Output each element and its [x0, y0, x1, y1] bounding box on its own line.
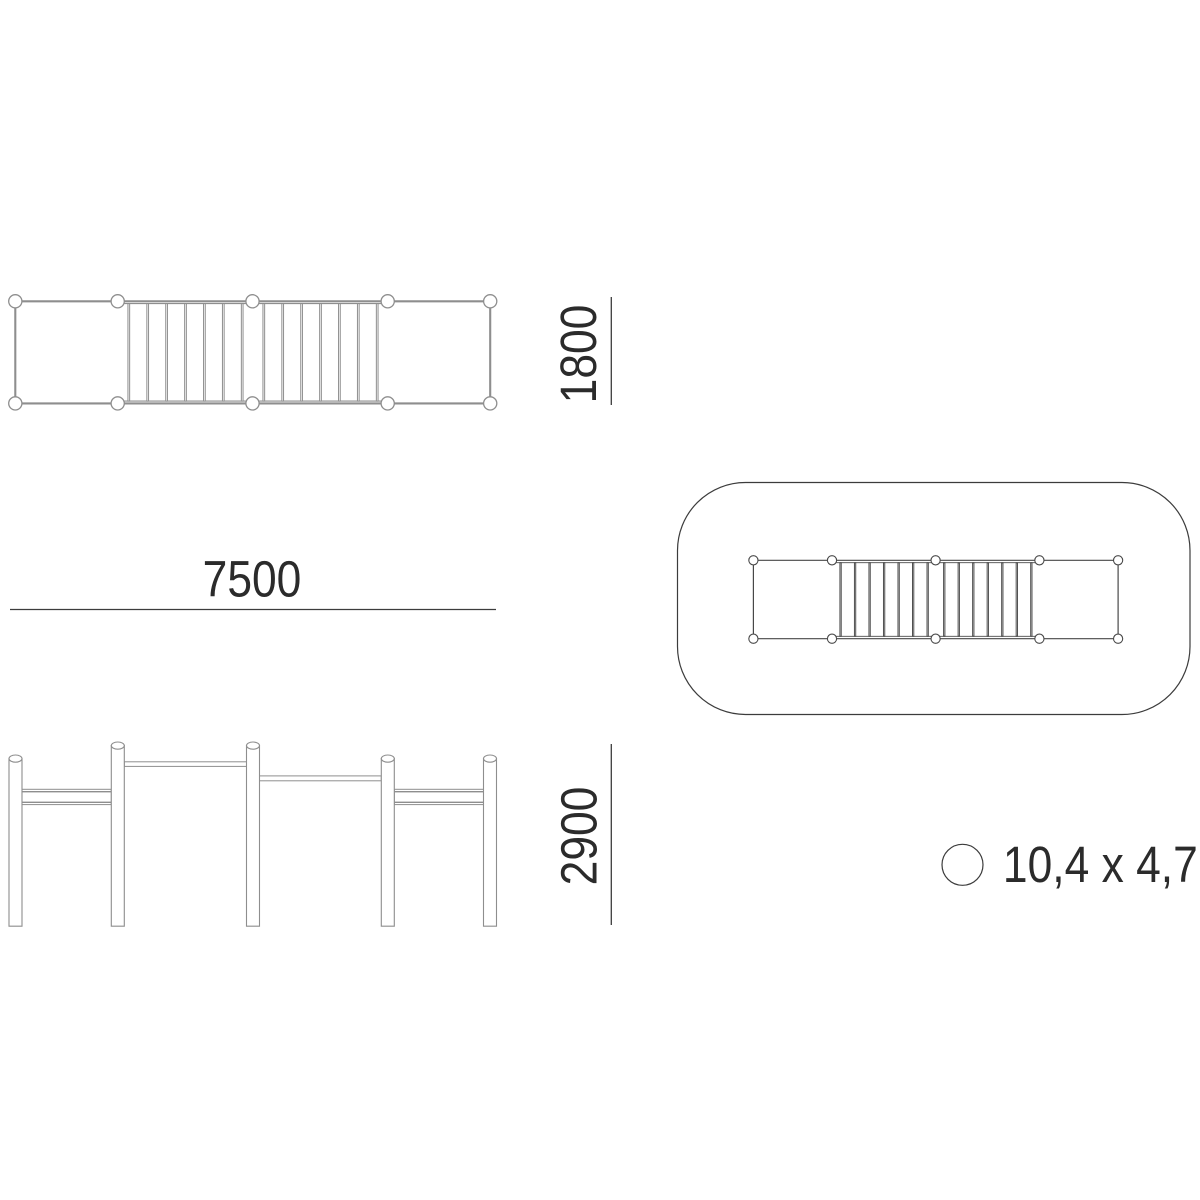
svg-text:10,4 x 4,7: 10,4 x 4,7: [1003, 837, 1198, 894]
svg-text:2900: 2900: [551, 787, 608, 886]
svg-text:1800: 1800: [551, 305, 608, 404]
svg-text:7500: 7500: [203, 552, 302, 609]
